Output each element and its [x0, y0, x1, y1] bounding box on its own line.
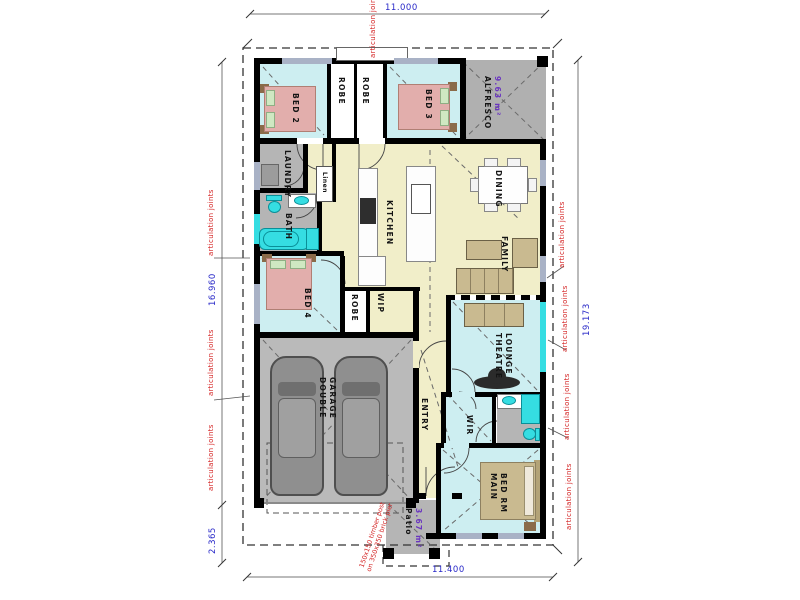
- kitchen-island-sink: [411, 184, 431, 214]
- family-sofa-1: [466, 240, 502, 260]
- room-alfresco: [462, 60, 546, 140]
- note-articulation-right-4: articulation joints: [565, 444, 573, 530]
- bath-sink: [294, 196, 309, 205]
- patio-area: 3.67 m²: [414, 508, 423, 549]
- room-label-robe-c: ROBE: [350, 294, 359, 322]
- room-label-robe-b: ROBE: [361, 77, 370, 105]
- door-gap-bed2: [297, 138, 323, 144]
- room-label-patio: Patio 3.67 m²: [404, 508, 423, 549]
- dining-chair-1: [484, 158, 498, 167]
- room-label-theatre: THEATRE LOUNGE: [494, 333, 513, 379]
- window-mainbed-2: [498, 533, 524, 539]
- car-1-roof: [278, 398, 316, 458]
- floor-plan-canvas: BED 2 ROBE ROBE BED 3 ALFRESCO 9.63 m² L…: [0, 0, 800, 600]
- dim-right: 19.173: [582, 288, 592, 336]
- window-theatre: [540, 302, 546, 372]
- wall-mainbed-west: [436, 443, 441, 535]
- wall-family-theatre: [446, 295, 542, 300]
- dim-left-lower: 2.365: [208, 514, 218, 554]
- bed4-pillow-b: [290, 260, 306, 269]
- ensuite-toilet-bowl: [523, 428, 536, 440]
- wall-laundry-bath: [254, 188, 308, 193]
- garage-line2: GARAGE: [328, 377, 337, 419]
- door-gap-bed3: [359, 138, 385, 144]
- window-bed4: [254, 284, 260, 324]
- bed2-pillow-b: [266, 112, 275, 128]
- dining-chair-5: [470, 178, 479, 192]
- room-label-robe-a: ROBE: [337, 77, 346, 105]
- room-label-bed2: BED 2: [291, 93, 300, 124]
- bath-shower: [306, 228, 319, 250]
- mainbed-line1: MAIN: [489, 473, 498, 513]
- room-label-wir: WIR: [465, 415, 474, 435]
- wall-wir-west: [441, 392, 446, 443]
- mainbed-pillows: [524, 466, 534, 516]
- patio-post-left: [383, 548, 394, 559]
- wall-theatre-west: [446, 295, 451, 397]
- dining-chair-2: [507, 158, 521, 167]
- patio-post-right: [429, 548, 440, 559]
- note-articulation-right-1: articulation joints: [558, 182, 566, 268]
- dim-left-upper: 16.960: [208, 258, 218, 306]
- room-label-laundry: LAUNDRY: [283, 150, 292, 198]
- garage-line1: DOUBLE: [318, 377, 327, 419]
- room-label-dining: DINING: [494, 170, 503, 208]
- alfresco-name: ALFRESCO: [483, 76, 492, 130]
- wall-robe-divider: [354, 64, 357, 138]
- family-sofa-2: [512, 238, 538, 268]
- window-bed3: [394, 58, 438, 64]
- theatre-line1: THEATRE: [494, 333, 503, 379]
- theatre-couch: [464, 303, 524, 327]
- wall-dining-top: [452, 139, 546, 144]
- window-mainbed-1: [456, 533, 482, 539]
- kitchen-corner-cabinet: [358, 256, 386, 286]
- door-gap-mainbed: [444, 443, 469, 448]
- bathtub-inner: [263, 231, 299, 247]
- room-label-linen: Linen: [321, 172, 328, 193]
- kitchen-island: [406, 166, 436, 262]
- room-label-bed3: BED 3: [424, 89, 433, 120]
- wall-garage-door-post-right: [406, 498, 416, 508]
- wall-wir-ensuite: [492, 392, 496, 448]
- dining-chair-4: [507, 203, 521, 212]
- patio-name: Patio: [404, 508, 413, 549]
- window-bed2: [282, 58, 332, 64]
- window-family: [540, 256, 546, 282]
- room-label-garage: DOUBLE GARAGE: [318, 377, 337, 419]
- theatre-line2: LOUNGE: [504, 333, 513, 379]
- alfresco-area: 9.63 m²: [493, 76, 502, 130]
- wall-porch-right: [452, 493, 462, 499]
- note-articulation-left-3: articulation joints: [207, 405, 215, 491]
- wall-robe-c-east: [366, 287, 370, 333]
- room-label-entry: ENTRY: [420, 398, 429, 431]
- window-laundry: [254, 162, 260, 190]
- mainbed-line2: BED RM: [499, 473, 508, 513]
- note-articulation-right-3: articulation joints: [563, 356, 571, 440]
- wall-robe-b: [383, 64, 387, 138]
- dim-top: 11.000: [385, 3, 418, 13]
- note-articulation-top: articulation joints: [369, 6, 377, 58]
- wall-front: [426, 533, 546, 539]
- bath-toilet-bowl: [268, 201, 281, 213]
- wall-garage-door-post-left: [254, 498, 264, 508]
- wall-robe-a: [327, 64, 331, 138]
- dim-bottom: 11.400: [432, 565, 465, 575]
- room-label-bath: BATH: [284, 213, 293, 240]
- room-label-bed4: BED 4: [303, 288, 312, 319]
- ensuite-shower: [521, 394, 540, 424]
- room-label-family: FAMILY: [500, 236, 509, 273]
- dining-chair-6: [528, 178, 537, 192]
- laundry-appliance: [261, 164, 279, 186]
- room-label-wip: WIP: [376, 293, 385, 313]
- ensuite-sink: [502, 396, 516, 405]
- bed3-pillow-b: [440, 110, 449, 126]
- door-gap-garage-entry: [413, 341, 419, 368]
- car-1-windshield: [278, 382, 316, 396]
- room-label-kitchen: KITCHEN: [385, 200, 394, 245]
- car-2-windshield: [342, 382, 380, 396]
- wall-bed4-east: [340, 256, 345, 333]
- door-gap-theatre: [452, 392, 475, 397]
- note-articulation-left-1: articulation joints: [207, 170, 215, 256]
- wall-entry-west: [413, 287, 419, 503]
- wall-porch-left: [413, 493, 426, 499]
- bed2-pillow-a: [266, 90, 275, 106]
- car-2-roof: [342, 398, 380, 458]
- mainbed-side-table: [524, 522, 536, 531]
- wall-laundry-east: [303, 144, 308, 188]
- room-label-alfresco: ALFRESCO 9.63 m²: [483, 76, 502, 130]
- note-articulation-left-2: articulation joints: [207, 310, 215, 396]
- wall-garage-top: [254, 332, 419, 338]
- wall-bed3-alfresco: [460, 58, 466, 144]
- bed4-pillow-a: [270, 260, 286, 269]
- window-dining: [540, 160, 546, 186]
- note-articulation-right-2: articulation joints: [561, 272, 569, 352]
- dining-table: [478, 166, 528, 204]
- kitchen-stove: [360, 198, 376, 224]
- wall-alfresco-column: [537, 56, 548, 67]
- bed3-pillow-a: [440, 88, 449, 104]
- room-label-mainbed: MAIN BED RM: [489, 473, 508, 513]
